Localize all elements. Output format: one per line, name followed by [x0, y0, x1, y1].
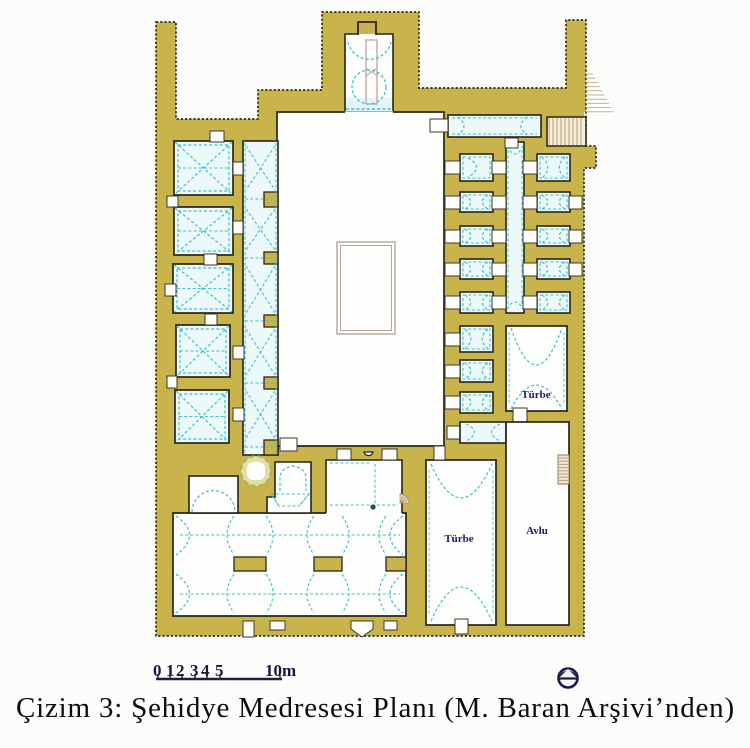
- svg-text:Türbe: Türbe: [444, 533, 473, 545]
- svg-text:5: 5: [215, 661, 224, 680]
- svg-text:1: 1: [166, 661, 175, 680]
- svg-text:Türbe: Türbe: [521, 389, 550, 401]
- svg-text:2: 2: [176, 661, 185, 680]
- svg-text:4: 4: [201, 661, 210, 680]
- svg-text:Avlu: Avlu: [526, 525, 548, 537]
- svg-text:10m: 10m: [265, 661, 296, 680]
- svg-text:3: 3: [190, 661, 199, 680]
- svg-text:Çizim 3: Şehidye Medresesi Pla: Çizim 3: Şehidye Medresesi Planı (M. Bar…: [16, 692, 735, 724]
- svg-text:0: 0: [153, 661, 162, 680]
